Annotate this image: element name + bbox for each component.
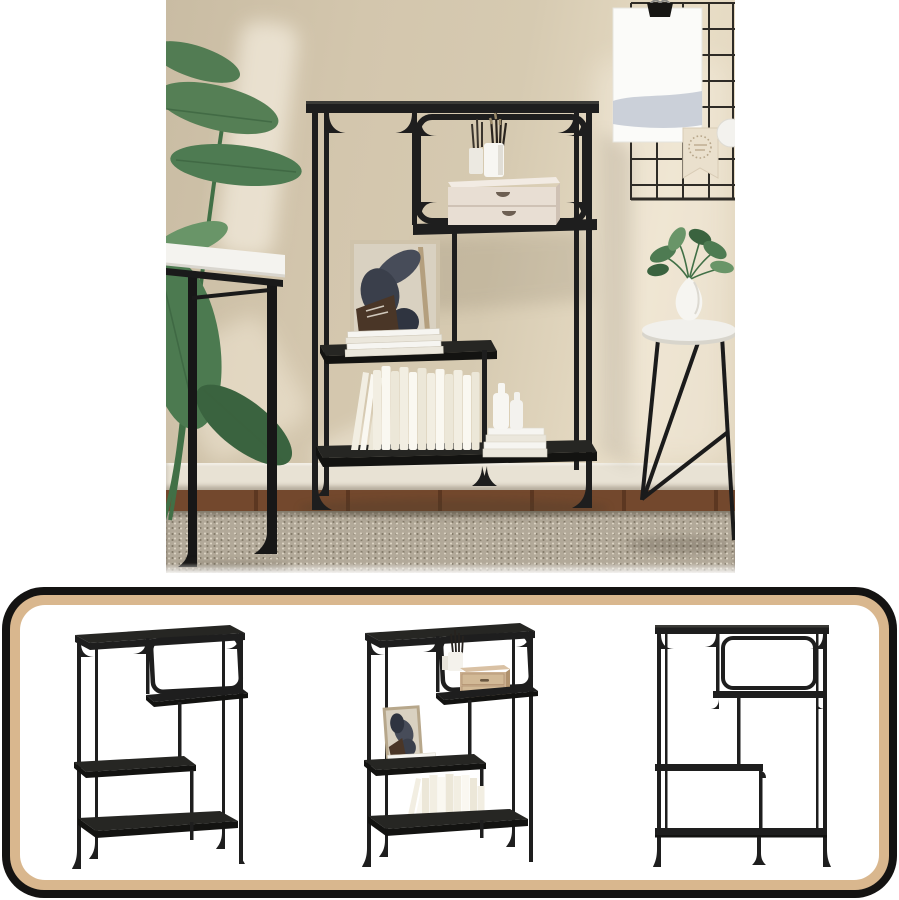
thumb-front-empty xyxy=(653,621,831,871)
catalog-strip xyxy=(2,587,897,898)
product-image xyxy=(0,0,899,900)
thumb-angled-styled xyxy=(362,620,540,870)
poster-with-clip xyxy=(613,1,702,143)
photo-bottom-fade xyxy=(166,563,735,573)
scene-artwork xyxy=(166,0,735,573)
thumb-angled-empty xyxy=(72,622,250,872)
magazine-stack xyxy=(345,328,444,356)
side-table xyxy=(626,224,735,553)
books-row xyxy=(351,366,480,450)
strip-inner xyxy=(20,605,879,880)
binder-clip-icon xyxy=(647,1,673,18)
lifestyle-photo xyxy=(166,0,735,573)
drawer-box xyxy=(448,177,560,225)
vase-plant xyxy=(646,224,735,320)
floor-shadows xyxy=(172,499,609,573)
bauble-ornament xyxy=(717,119,735,147)
strip-tan-border xyxy=(10,595,889,890)
pennant-flag xyxy=(683,128,718,178)
bottles-and-stack xyxy=(483,383,547,457)
brush-cups xyxy=(469,113,506,177)
